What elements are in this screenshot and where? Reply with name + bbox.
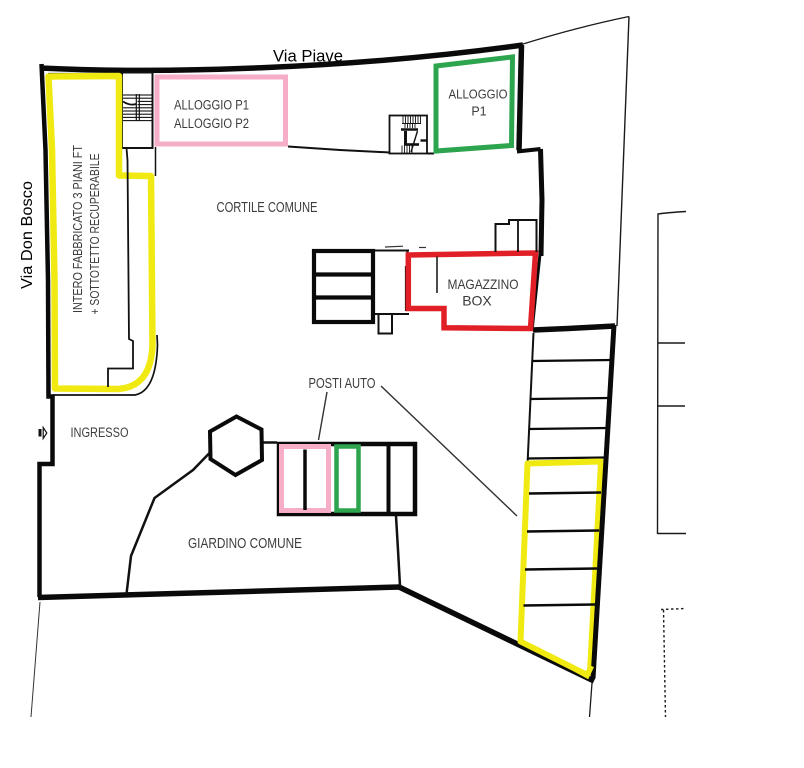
svg-text:BOX: BOX — [462, 293, 492, 309]
svg-text:POSTI AUTO: POSTI AUTO — [309, 375, 376, 392]
svg-text:INGRESSO: INGRESSO — [71, 425, 129, 440]
svg-text:GIARDINO COMUNE: GIARDINO COMUNE — [188, 535, 302, 552]
svg-text:Via Piave: Via Piave — [273, 48, 343, 66]
svg-text:ALLOGGIO: ALLOGGIO — [449, 88, 508, 102]
svg-text:P1: P1 — [471, 105, 486, 119]
svg-text:ALLOGGIO P2: ALLOGGIO P2 — [174, 116, 249, 131]
svg-text:CORTILE COMUNE: CORTILE COMUNE — [217, 199, 318, 216]
svg-text:Via Don Bosco: Via Don Bosco — [19, 181, 36, 289]
svg-text:ALLOGGIO P1: ALLOGGIO P1 — [174, 98, 249, 113]
svg-text:INTERO FABBRICATO 3 PIANI FT: INTERO FABBRICATO 3 PIANI FT — [71, 145, 85, 313]
svg-text:+ SOTTOTETTO RECUPERABILE: + SOTTOTETTO RECUPERABILE — [88, 154, 102, 315]
svg-text:MAGAZZINO: MAGAZZINO — [448, 276, 519, 292]
